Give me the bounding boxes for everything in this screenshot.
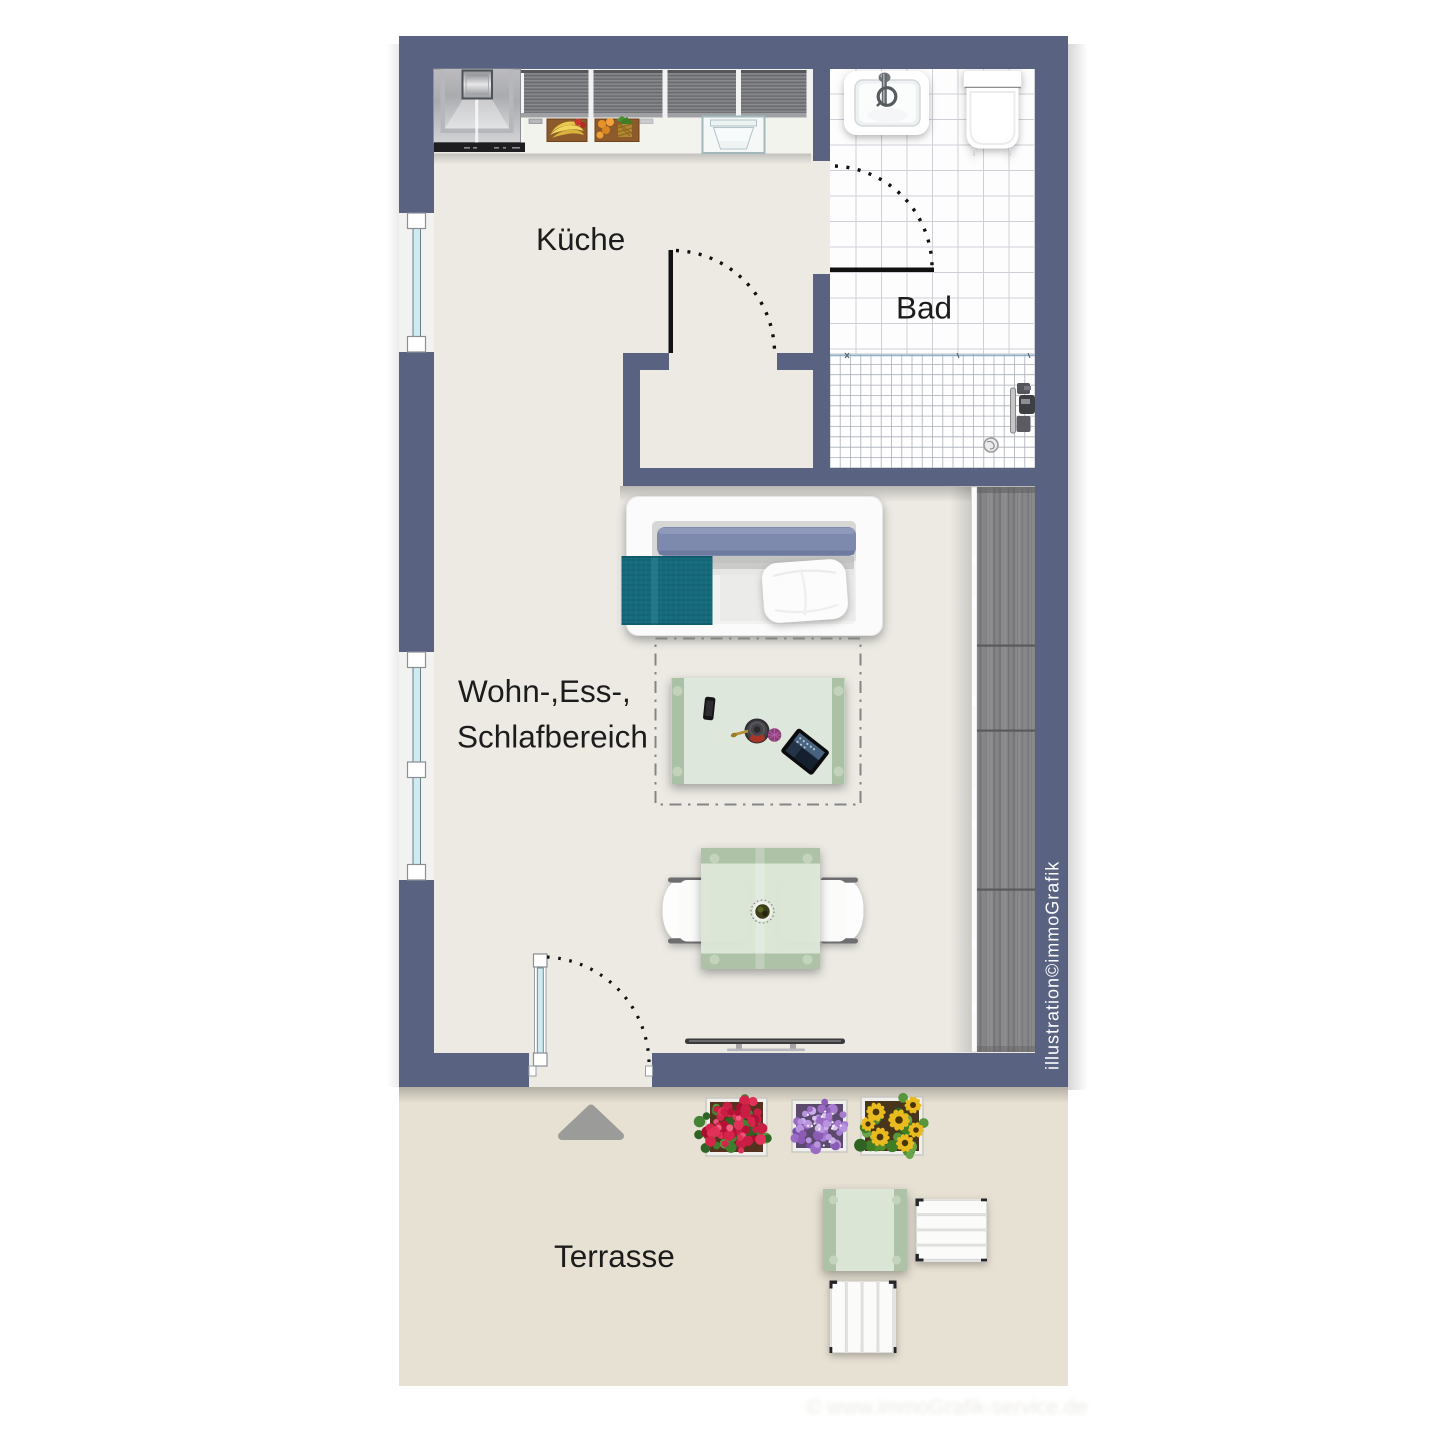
svg-text:Schlafbereich: Schlafbereich [457, 719, 648, 755]
svg-text:Küche: Küche [536, 221, 625, 257]
svg-text:illustration©immoGrafik: illustration©immoGrafik [1043, 861, 1063, 1070]
svg-text:Terrasse: Terrasse [554, 1238, 675, 1274]
svg-text:Wohn-,Ess-,: Wohn-,Ess-, [458, 673, 631, 709]
svg-text:© www.immoGrafik-service.de: © www.immoGrafik-service.de [806, 1396, 1088, 1419]
svg-text:Bad: Bad [896, 290, 952, 326]
